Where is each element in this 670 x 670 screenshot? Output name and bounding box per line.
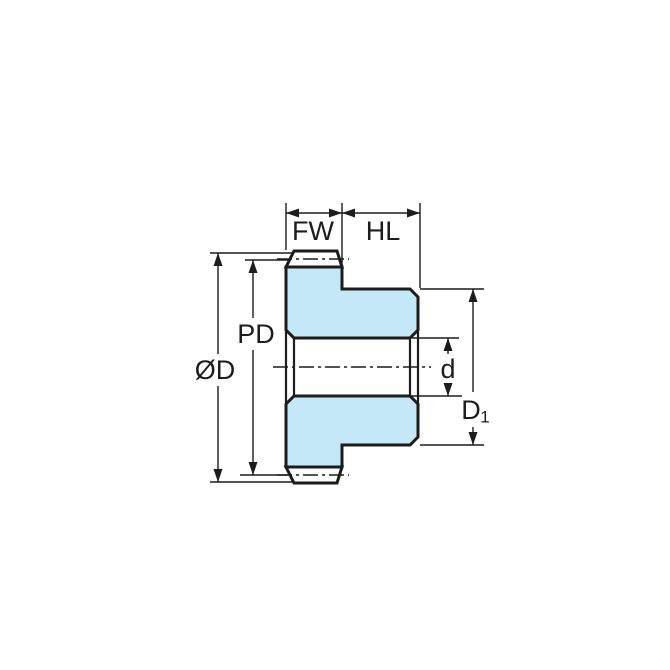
arrowhead-down bbox=[444, 383, 453, 396]
gear-lower-body bbox=[286, 396, 418, 467]
gear-dimension-diagram: FW HL ØD PD d D bbox=[0, 0, 670, 670]
label-hub-diameter-subscript: 1 bbox=[480, 408, 489, 427]
gear-cross-section bbox=[273, 251, 431, 483]
label-bore-diameter: d bbox=[440, 354, 455, 384]
arrowhead-down bbox=[249, 462, 258, 475]
gear-upper-body bbox=[286, 267, 418, 338]
arrowhead-right bbox=[407, 209, 420, 218]
arrowhead-up bbox=[469, 289, 478, 302]
arrowhead-up bbox=[214, 253, 223, 266]
arrowhead-down bbox=[214, 469, 223, 482]
arrowhead-up bbox=[444, 338, 453, 351]
arrowhead-up bbox=[249, 260, 258, 273]
arrowhead-down bbox=[469, 432, 478, 445]
arrowhead-left bbox=[342, 209, 355, 218]
label-hub-diameter: D bbox=[461, 395, 481, 425]
drawing-canvas: FW HL ØD PD d D bbox=[0, 0, 670, 670]
label-pitch-diameter: PD bbox=[237, 319, 275, 349]
label-outside-diameter: ØD bbox=[195, 355, 236, 385]
label-face-width: FW bbox=[292, 216, 334, 246]
label-hub-length: HL bbox=[366, 216, 401, 246]
